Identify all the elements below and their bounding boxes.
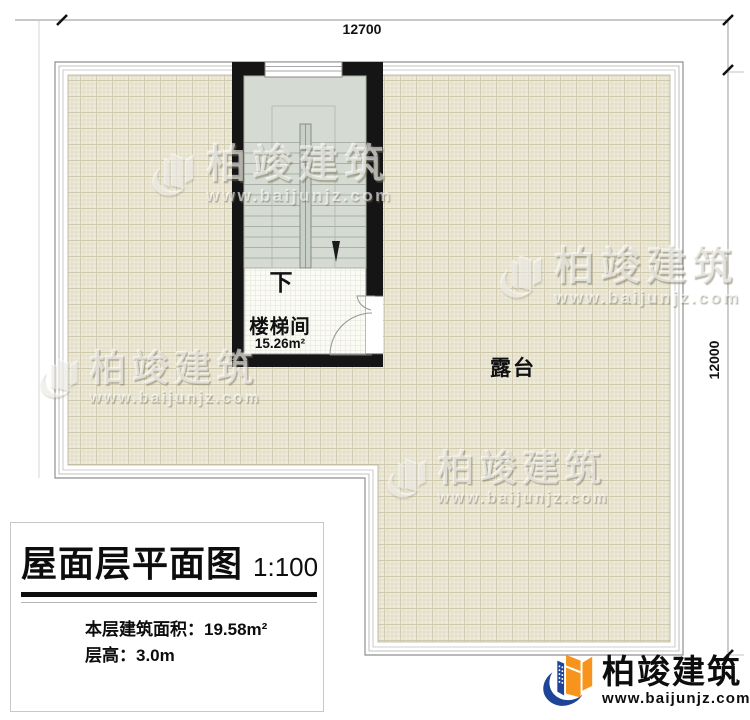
brand-url: www.baijunjz.com — [602, 691, 750, 706]
stair-window — [265, 62, 342, 77]
brand-name: 柏竣建筑 — [602, 655, 750, 688]
brand-building-icon — [536, 648, 598, 712]
plan-scale: 1:100 — [253, 552, 318, 583]
stairwell-area-label: 15.26m² — [255, 336, 306, 351]
title-thinline — [21, 602, 317, 603]
down-label: 下 — [270, 269, 293, 295]
terrace-label: 露台 — [490, 356, 536, 380]
floor-height-label: 层高： — [85, 646, 136, 665]
stairwell-label: 楼梯间 — [249, 315, 311, 338]
floor-area-info: 本层建筑面积：19.58m² — [85, 617, 315, 643]
title-underline — [21, 592, 317, 597]
floor-height-value: 3.0m — [136, 646, 175, 665]
floor-area-value: 19.58m² — [204, 620, 267, 639]
dim-right-label: 12000 — [706, 340, 722, 379]
dim-top-label: 12700 — [343, 21, 382, 37]
floor-plan-page: 12700 12000 下 楼梯间 15.26m² 露台 柏竣建筑 www.ba… — [0, 0, 750, 720]
title-block: 屋面层平面图 1:100 本层建筑面积：19.58m² 层高：3.0m — [10, 522, 324, 712]
brand-logo: 柏竣建筑 www.baijunjz.com — [536, 648, 750, 712]
plan-title: 屋面层平面图 — [21, 535, 243, 587]
stair-flight — [244, 76, 366, 268]
stair-rail — [300, 124, 311, 268]
floor-height-info: 层高：3.0m — [85, 643, 315, 669]
floor-area-label: 本层建筑面积： — [85, 620, 204, 639]
